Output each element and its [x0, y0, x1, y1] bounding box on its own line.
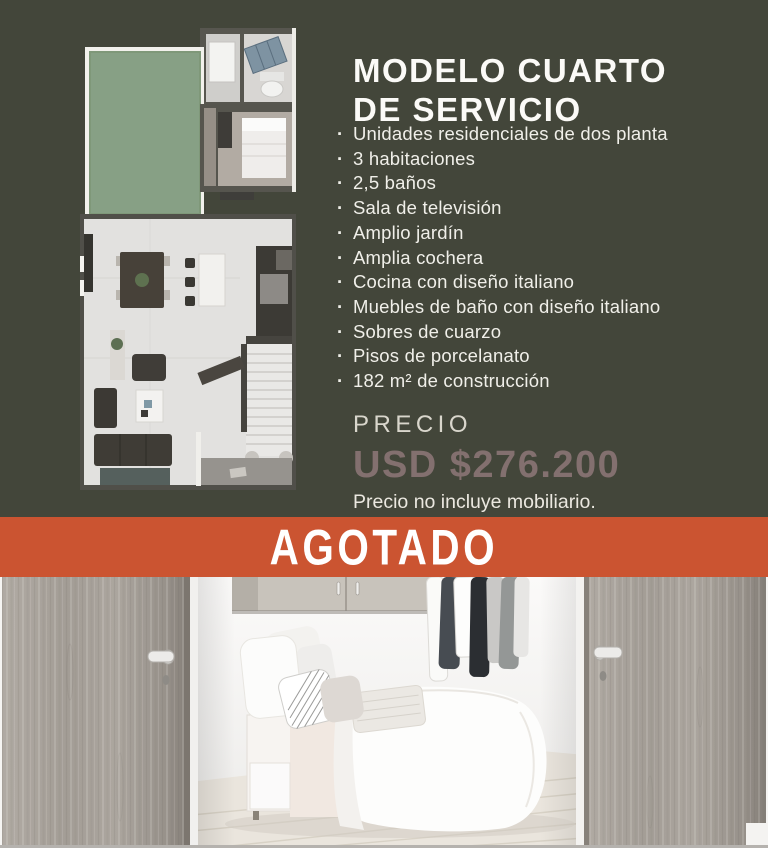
room-photo-svg — [0, 577, 768, 848]
feature-item: 3 habitaciones — [353, 147, 753, 172]
listing-info: MODELO CUARTO DE SERVICIO Unidades resid… — [353, 51, 753, 514]
floorplan-svg — [80, 28, 296, 490]
floorplan-garden — [85, 47, 204, 219]
price-block: PRECIO USD $276.200 Precio no incluye mo… — [353, 411, 753, 514]
floorplan-bathroom — [200, 28, 296, 108]
status-banner-label: AGOTADO — [270, 518, 499, 576]
feature-item: Amplio jardín — [353, 221, 753, 246]
hanging-clothes — [426, 577, 529, 681]
price-value: USD $276.200 — [353, 444, 753, 487]
cabinet-handle-icon — [356, 582, 359, 595]
listing-flyer: MODELO CUARTO DE SERVICIO Unidades resid… — [0, 0, 768, 848]
coffee-table-icon — [136, 390, 163, 422]
feature-item: Cocina con diseño italiano — [353, 270, 753, 295]
top-section: MODELO CUARTO DE SERVICIO Unidades resid… — [0, 0, 768, 517]
plant-icon — [111, 338, 123, 350]
floorplan-bedroom — [200, 104, 296, 200]
cabinet-handle-icon — [337, 582, 340, 595]
keyhole-icon — [600, 671, 607, 681]
tv-unit-icon — [84, 234, 93, 292]
dining-table-icon — [116, 252, 170, 308]
price-label: PRECIO — [353, 411, 753, 439]
kitchen-counter-icon — [256, 246, 292, 338]
right-door — [576, 577, 768, 848]
sofa-bottom-icon — [94, 434, 172, 466]
rug-icon — [100, 468, 170, 485]
feature-item: Sobres de cuarzo — [353, 320, 753, 345]
price-note: Precio no incluye mobiliario. — [353, 491, 753, 514]
sofa-left-icon — [94, 388, 117, 428]
feature-item: 2,5 baños — [353, 171, 753, 196]
toilet-tank-icon — [260, 72, 284, 81]
feature-item: Sala de televisión — [353, 196, 753, 221]
closet-cabinet — [232, 577, 437, 614]
feature-list: Unidades residenciales de dos planta 3 h… — [353, 122, 753, 394]
status-banner: AGOTADO — [0, 517, 768, 577]
title-line-1: MODELO CUARTO — [353, 52, 667, 89]
feature-item: Muebles de baño con diseño italiano — [353, 295, 753, 320]
feature-item: Amplia cochera — [353, 246, 753, 271]
toilet-icon — [261, 81, 283, 97]
feature-item: 182 m² de construcción — [353, 369, 753, 394]
room-photo — [0, 577, 768, 848]
feature-item: Unidades residenciales de dos planta — [353, 122, 753, 147]
keyhole-icon — [163, 675, 170, 685]
stairs-icon — [241, 336, 293, 465]
floorplan-image — [80, 28, 296, 490]
armchair-icon — [132, 354, 166, 381]
feature-item: Pisos de porcelanato — [353, 344, 753, 369]
kitchen-island-icon — [185, 254, 225, 306]
left-door — [0, 577, 198, 848]
side-table-icon — [110, 330, 125, 380]
floorplan-living-area — [80, 214, 296, 490]
page-title: MODELO CUARTO DE SERVICIO — [353, 51, 753, 129]
